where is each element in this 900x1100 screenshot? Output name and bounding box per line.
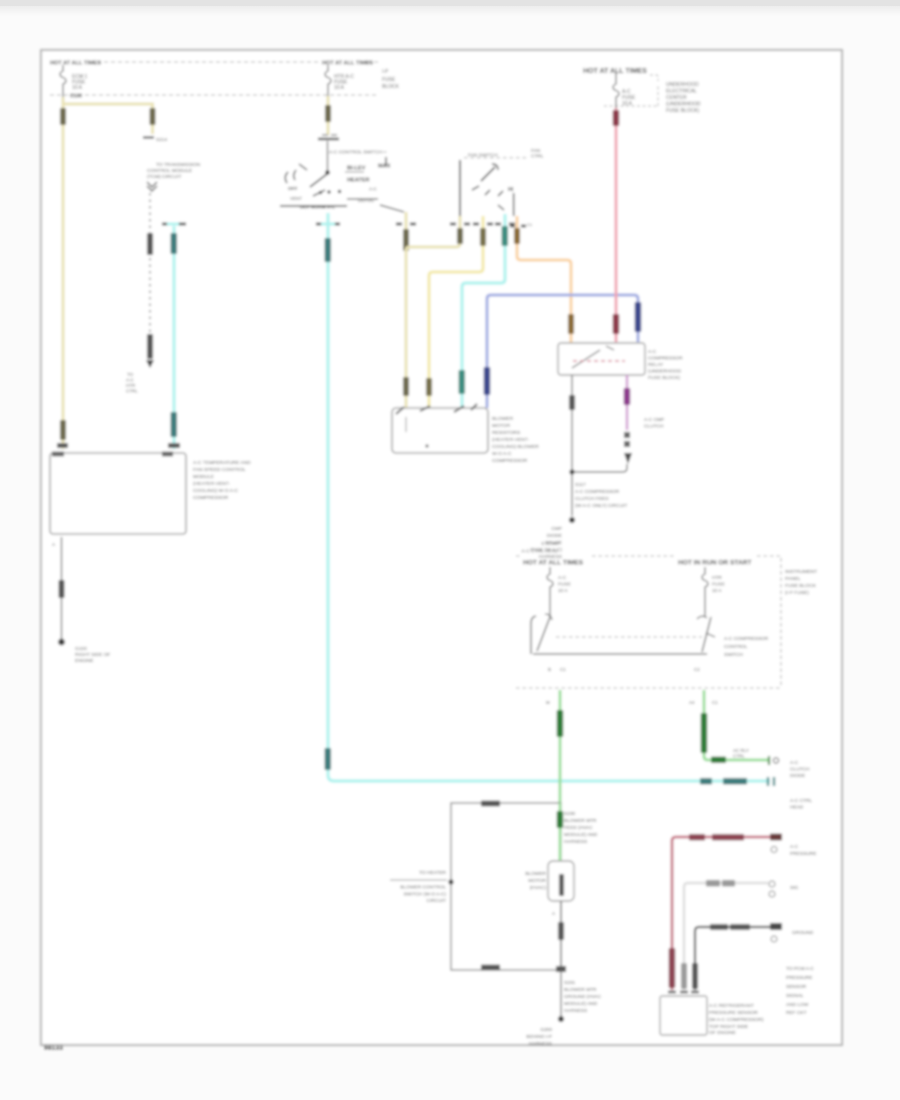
svg-text:A-C CTRL: A-C CTRL bbox=[790, 798, 812, 804]
svg-text:ELECTRICAL: ELECTRICAL bbox=[666, 89, 697, 95]
svg-text:A-C: A-C bbox=[648, 349, 657, 355]
svg-text:S COMP: S COMP bbox=[541, 541, 560, 547]
svg-text:FUSE BLOCK: FUSE BLOCK bbox=[785, 583, 817, 589]
svg-text:(I-P FUSE): (I-P FUSE) bbox=[785, 590, 809, 596]
svg-text:GROUND: GROUND bbox=[792, 930, 814, 936]
svg-text:TO TRANSMISSION: TO TRANSMISSION bbox=[156, 162, 201, 168]
svg-text:RESISTORS: RESISTORS bbox=[492, 430, 521, 436]
svg-text:HARNESS: HARNESS bbox=[529, 1041, 552, 1047]
svg-text:A4: A4 bbox=[689, 700, 695, 705]
svg-text:BI-LEV: BI-LEV bbox=[347, 166, 366, 172]
svg-text:CMP: CMP bbox=[551, 526, 562, 532]
svg-text:A-C COMPRESSOR: A-C COMPRESSOR bbox=[575, 489, 620, 495]
svg-text:AND LOW: AND LOW bbox=[786, 1002, 809, 1008]
svg-text:SENSOR: SENSOR bbox=[786, 984, 807, 990]
svg-text:DIODE: DIODE bbox=[790, 773, 805, 779]
svg-text:BLOWER CONTROL: BLOWER CONTROL bbox=[400, 885, 446, 891]
svg-text:FAN: FAN bbox=[531, 148, 541, 154]
svg-text:CLUTCH: CLUTCH bbox=[644, 424, 664, 430]
svg-text:CONTROL MODULE: CONTROL MODULE bbox=[147, 168, 192, 174]
svg-text:A-C TEMPERATURE AND: A-C TEMPERATURE AND bbox=[193, 460, 251, 466]
svg-text:(UNDERHOOD: (UNDERHOOD bbox=[648, 369, 682, 375]
svg-text:FUSE: FUSE bbox=[558, 582, 571, 588]
svg-text:PRESSURE: PRESSURE bbox=[790, 851, 816, 857]
svg-text:SIG: SIG bbox=[790, 885, 799, 891]
svg-text:HOT AT ALL TIMES: HOT AT ALL TIMES bbox=[583, 68, 647, 75]
svg-text:S214: S214 bbox=[156, 137, 168, 143]
svg-text:S117: S117 bbox=[575, 482, 586, 488]
svg-text:HTR: HTR bbox=[126, 383, 136, 388]
svg-text:REF CKT: REF CKT bbox=[786, 1010, 807, 1016]
svg-text:FEED (HVAC: FEED (HVAC bbox=[564, 825, 593, 831]
svg-text:HEAD: HEAD bbox=[790, 805, 804, 811]
svg-text:PRESSURE: PRESSURE bbox=[786, 975, 812, 981]
svg-text:COMPRESSOR: COMPRESSOR bbox=[193, 495, 229, 501]
svg-text:HOT AT ALL TIMES: HOT AT ALL TIMES bbox=[322, 61, 373, 67]
svg-text:MAX: MAX bbox=[378, 164, 391, 170]
svg-text:TO: TO bbox=[127, 372, 134, 377]
svg-text:M: M bbox=[546, 700, 550, 705]
svg-text:COOLING) BLOWER: COOLING) BLOWER bbox=[492, 444, 539, 450]
svg-text:SWITCH: SWITCH bbox=[724, 652, 743, 658]
svg-text:G103: G103 bbox=[75, 646, 87, 652]
svg-text:CLUTCH FEED: CLUTCH FEED bbox=[575, 496, 609, 502]
svg-text:CTRL: CTRL bbox=[126, 389, 138, 394]
svg-text:TO HEATER: TO HEATER bbox=[419, 870, 447, 876]
svg-text:BLOWER: BLOWER bbox=[492, 416, 514, 422]
svg-text:(HEATER-VENT-: (HEATER-VENT- bbox=[492, 437, 530, 443]
svg-text:FUSE: FUSE bbox=[382, 77, 396, 83]
svg-text:FUSE BLOCK): FUSE BLOCK) bbox=[666, 108, 700, 114]
svg-text:MOTOR: MOTOR bbox=[528, 878, 546, 884]
svg-text:OF ENGINE: OF ENGINE bbox=[709, 1030, 737, 1036]
svg-text:COOLING) W-O A-C: COOLING) W-O A-C bbox=[193, 488, 238, 494]
svg-text:CENTER: CENTER bbox=[666, 95, 687, 101]
svg-text:INSTRUMENT: INSTRUMENT bbox=[785, 569, 817, 575]
svg-text:A: A bbox=[52, 542, 55, 547]
svg-text:C1: C1 bbox=[527, 222, 533, 227]
svg-text:HOT IN RUN OR START: HOT IN RUN OR START bbox=[678, 560, 752, 567]
svg-text:(HEATER-VENT-: (HEATER-VENT- bbox=[193, 481, 231, 487]
svg-text:HOT AT ALL TIMES: HOT AT ALL TIMES bbox=[50, 61, 101, 67]
svg-text:PRESSURE SENSOR: PRESSURE SENSOR bbox=[709, 1010, 758, 1016]
svg-text:A-C CONTROL SWITCH: A-C CONTROL SWITCH bbox=[329, 150, 383, 156]
svg-text:C2: C2 bbox=[694, 667, 700, 672]
svg-text:MODULE) AND: MODULE) AND bbox=[564, 832, 598, 838]
svg-text:FUSE BLOCK): FUSE BLOCK) bbox=[648, 375, 680, 381]
svg-text:COMPRESSOR: COMPRESSOR bbox=[492, 458, 528, 464]
svg-text:TOP RIGHT SIDE: TOP RIGHT SIDE bbox=[709, 1024, 749, 1030]
svg-text:CTRL: CTRL bbox=[733, 754, 745, 759]
svg-text:RELAY: RELAY bbox=[648, 362, 664, 368]
svg-text:BLOCK: BLOCK bbox=[382, 84, 400, 90]
svg-text:MOTOR: MOTOR bbox=[492, 423, 511, 429]
svg-text:A-C: A-C bbox=[790, 760, 799, 766]
svg-text:CLUTCH: CLUTCH bbox=[790, 767, 810, 773]
svg-text:A: A bbox=[552, 911, 555, 916]
svg-text:(UNDERHOOD: (UNDERHOOD bbox=[666, 102, 701, 108]
svg-text:(W-A-C COMPRESSOR): (W-A-C COMPRESSOR) bbox=[709, 1017, 764, 1023]
svg-text:CONTROL: CONTROL bbox=[724, 644, 748, 650]
svg-text:FAN SPEED CONTROL: FAN SPEED CONTROL bbox=[193, 467, 246, 473]
svg-text:BLOWER: BLOWER bbox=[525, 871, 546, 877]
svg-text:GROUND (HVAC: GROUND (HVAC bbox=[564, 994, 602, 1000]
svg-text:SWITCH (W-O A-C): SWITCH (W-O A-C) bbox=[403, 892, 446, 898]
svg-text:CTRL: CTRL bbox=[531, 154, 544, 160]
svg-text:C1: C1 bbox=[560, 667, 566, 672]
svg-text:10 A: 10 A bbox=[712, 588, 722, 594]
svg-text:ENGINE: ENGINE bbox=[75, 658, 93, 664]
svg-text:DIODE: DIODE bbox=[547, 533, 562, 539]
svg-text:A-C: A-C bbox=[369, 187, 378, 192]
svg-text:G200: G200 bbox=[540, 1027, 552, 1033]
svg-text:CIRCUIT: CIRCUIT bbox=[427, 898, 447, 904]
svg-text:10 A: 10 A bbox=[622, 101, 633, 107]
svg-text:C1: C1 bbox=[712, 700, 718, 705]
svg-text:A-C CMP: A-C CMP bbox=[644, 417, 664, 423]
svg-text:98133: 98133 bbox=[44, 1045, 63, 1052]
svg-text:HEATER: HEATER bbox=[347, 178, 370, 184]
svg-text:A-C REFRIGERANT: A-C REFRIGERANT bbox=[709, 1003, 754, 1009]
svg-text:COMPRESSOR: COMPRESSOR bbox=[648, 356, 683, 362]
svg-text:BLOWER MTR: BLOWER MTR bbox=[564, 987, 597, 993]
svg-text:W-O A-C: W-O A-C bbox=[492, 451, 512, 457]
svg-text:BLOWER MTR: BLOWER MTR bbox=[564, 818, 597, 824]
svg-text:BEHIND I-P: BEHIND I-P bbox=[526, 1034, 552, 1040]
svg-text:I-P: I-P bbox=[382, 69, 389, 75]
svg-text:PANEL: PANEL bbox=[785, 576, 801, 582]
svg-text:SIGNAL: SIGNAL bbox=[786, 993, 804, 999]
svg-text:A-C CTRL HEAD: A-C CTRL HEAD bbox=[521, 549, 558, 555]
svg-text:A-C: A-C bbox=[126, 378, 135, 383]
svg-text:A-C: A-C bbox=[790, 844, 799, 850]
svg-text:HOT AT ALL TIMES: HOT AT ALL TIMES bbox=[523, 560, 584, 567]
svg-text:C100: C100 bbox=[70, 94, 82, 100]
svg-text:(HVAC): (HVAC) bbox=[530, 885, 547, 891]
svg-text:MODULE) AND: MODULE) AND bbox=[564, 1001, 598, 1007]
svg-text:S230: S230 bbox=[564, 811, 576, 817]
svg-text:TO PCM A-C: TO PCM A-C bbox=[786, 966, 814, 972]
svg-text:MODULE: MODULE bbox=[193, 474, 215, 480]
svg-text:(TCM) CIRCUIT: (TCM) CIRCUIT bbox=[147, 174, 181, 180]
svg-text:B: B bbox=[548, 667, 551, 672]
svg-text:HI: HI bbox=[508, 187, 514, 193]
svg-text:S231: S231 bbox=[564, 980, 576, 986]
svg-text:HARNESS: HARNESS bbox=[564, 839, 587, 845]
svg-text:VENT: VENT bbox=[290, 196, 302, 201]
svg-text:(W-A-C ONLY) CIRCUIT: (W-A-C ONLY) CIRCUIT bbox=[575, 503, 627, 509]
svg-text:10 A: 10 A bbox=[558, 588, 568, 594]
svg-text:AC RLY: AC RLY bbox=[733, 748, 749, 753]
svg-text:UNDERHOOD: UNDERHOOD bbox=[666, 82, 699, 88]
svg-text:FAN SWITCH: FAN SWITCH bbox=[468, 153, 498, 159]
svg-text:FUSE: FUSE bbox=[712, 582, 725, 588]
svg-text:A-C: A-C bbox=[558, 575, 567, 581]
svg-text:OFF: OFF bbox=[288, 186, 298, 192]
svg-text:HARNESS: HARNESS bbox=[564, 1008, 587, 1014]
svg-text:10 A: 10 A bbox=[334, 85, 345, 91]
svg-text:A-C COMPRESSOR: A-C COMPRESSOR bbox=[724, 636, 769, 642]
svg-text:10 A: 10 A bbox=[72, 85, 83, 91]
svg-text:HTR: HTR bbox=[712, 575, 722, 581]
svg-text:DEF NORM A-C: DEF NORM A-C bbox=[300, 205, 336, 211]
svg-text:RIGHT SIDE OF: RIGHT SIDE OF bbox=[75, 652, 110, 658]
